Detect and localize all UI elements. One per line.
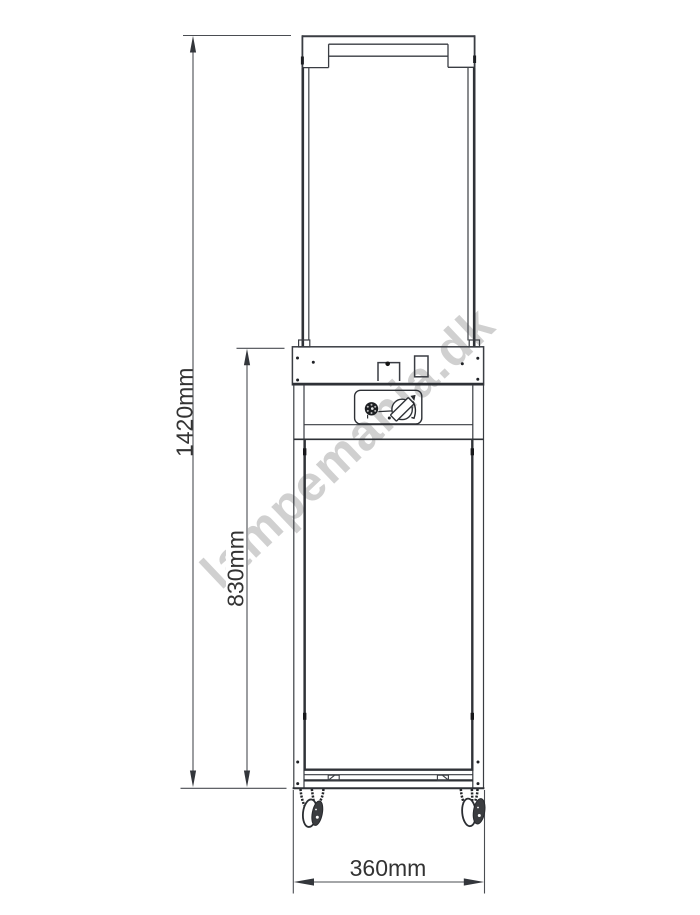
svg-text:360mm: 360mm: [350, 855, 427, 881]
svg-text:1420mm: 1420mm: [172, 368, 198, 457]
svg-text:830mm: 830mm: [223, 530, 249, 607]
